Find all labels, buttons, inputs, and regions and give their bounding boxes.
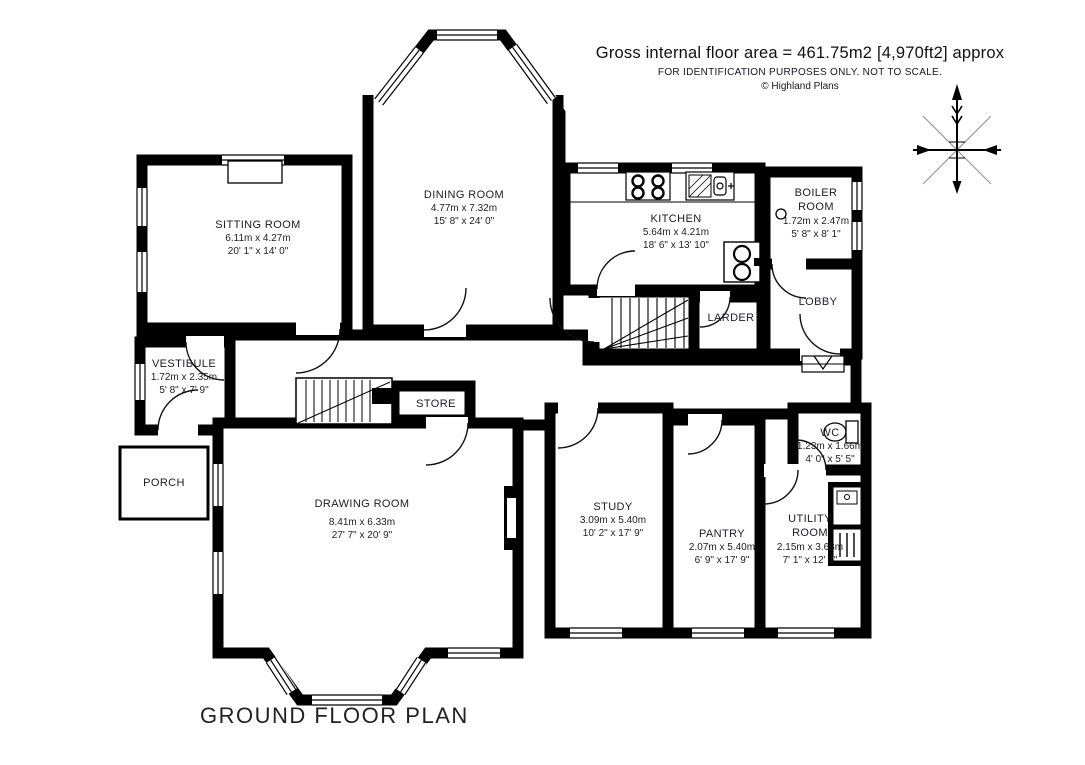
room-label-dining-room: DINING ROOM 4.77m x 7.32m 15' 8" x 24' 0…	[424, 188, 504, 228]
room-dims-metric: 8.41m x 6.33m	[315, 516, 410, 529]
room-label-store: STORE	[416, 397, 456, 411]
room-label-utility-room: UTILITY ROOM 2.15m x 3.68m 7' 1" x 12' 1…	[777, 512, 843, 567]
room-name: PANTRY	[689, 527, 755, 541]
room-name: SITTING ROOM	[215, 218, 300, 232]
room-name: STUDY	[580, 500, 646, 514]
floor-plan-page: Gross internal floor area = 461.75m2 [4,…	[0, 0, 1085, 765]
room-dims-imperial: 15' 8" x 24' 0"	[424, 215, 504, 228]
room-label-pantry: PANTRY 2.07m x 5.40m 6' 9" x 17' 9"	[689, 527, 755, 567]
room-dims-metric: 2.15m x 3.68m	[777, 541, 843, 554]
room-name: KITCHEN	[643, 212, 709, 226]
window-icon	[851, 222, 864, 250]
secondary-stairs-icon	[296, 378, 392, 424]
room-dims-metric: 1.72m x 2.35m	[151, 371, 217, 384]
window-icon	[212, 552, 225, 594]
room-dims-metric: 6.11m x 4.27m	[215, 232, 300, 245]
room-dims-metric: 5.64m x 4.21m	[643, 226, 709, 239]
window-icon	[692, 627, 744, 640]
window-icon	[448, 647, 500, 660]
room-dims-imperial: 7' 1" x 12' 1"	[777, 554, 843, 567]
room-name: DINING ROOM	[424, 188, 504, 202]
room-label-study: STUDY 3.09m x 5.40m 10' 2" x 17' 9"	[580, 500, 646, 540]
room-label-vestibule: VESTIBULE 1.72m x 2.35m 5' 8" x 7' 9"	[151, 357, 217, 397]
room-label-porch: PORCH	[143, 476, 185, 490]
copyright-text: © Highland Plans	[554, 81, 1046, 92]
room-name: UTILITY ROOM	[781, 512, 839, 541]
disclaimer-text: FOR IDENTIFICATION PURPOSES ONLY. NOT TO…	[554, 67, 1046, 78]
room-name: DRAWING ROOM	[315, 497, 410, 511]
room-dims-imperial: 10' 2" x 17' 9"	[580, 527, 646, 540]
header: Gross internal floor area = 461.75m2 [4,…	[554, 44, 1046, 92]
window-icon	[437, 29, 497, 42]
room-label-larder: LARDER	[707, 311, 754, 325]
window-icon	[778, 627, 834, 640]
room-dims-metric: 1.23m x 1.66m	[797, 440, 863, 453]
room-dims-imperial: 27' 7" x 20' 9"	[315, 529, 410, 542]
entrance-steps-icon	[802, 356, 844, 372]
fireplace-icon	[504, 486, 520, 550]
room-name: LOBBY	[799, 295, 838, 309]
room-label-wc: WC 1.23m x 1.66m 4' 0" x 5' 5"	[797, 426, 863, 466]
cooker-icon	[724, 242, 760, 282]
window-icon	[851, 182, 864, 210]
stairwell-walls	[594, 292, 694, 354]
compass-rose-icon	[913, 84, 1001, 194]
hob-icon	[626, 172, 670, 200]
gross-area-text: Gross internal floor area = 461.75m2 [4,…	[554, 44, 1046, 63]
room-dims-metric: 2.07m x 5.40m	[689, 541, 755, 554]
room-dims-imperial: 4' 0" x 5' 5"	[797, 453, 863, 466]
sink-icon	[686, 172, 734, 200]
room-name: PORCH	[143, 476, 185, 490]
window-icon	[136, 188, 149, 226]
room-label-kitchen: KITCHEN 5.64m x 4.21m 18' 6" x 13' 10"	[643, 212, 709, 252]
room-dims-metric: 1.72m x 2.47m	[783, 215, 849, 228]
room-label-drawing-room: DRAWING ROOM 8.41m x 6.33m 27' 7" x 20' …	[315, 497, 410, 542]
room-dims-imperial: 20' 1" x 14' 0"	[215, 245, 300, 258]
room-label-lobby: LOBBY	[799, 295, 838, 309]
room-dims-imperial: 5' 8" x 8' 1"	[783, 228, 849, 241]
window-icon	[136, 252, 149, 292]
room-name: BOILER ROOM	[787, 186, 845, 215]
walls	[140, 35, 866, 700]
room-dims-imperial: 6' 9" x 17' 9"	[689, 554, 755, 567]
window-icon	[570, 627, 622, 640]
room-name: STORE	[416, 397, 456, 411]
room-label-boiler-room: BOILER ROOM 1.72m x 2.47m 5' 8" x 8' 1"	[783, 186, 849, 241]
window-icon	[134, 364, 147, 400]
room-name: LARDER	[707, 311, 754, 325]
window-icon	[578, 162, 618, 175]
room-name: VESTIBULE	[151, 357, 217, 371]
room-dims-metric: 4.77m x 7.32m	[424, 202, 504, 215]
sitting-room-recess	[228, 161, 282, 183]
plan-title: GROUND FLOOR PLAN	[200, 703, 469, 729]
room-name: WC	[797, 426, 863, 440]
room-label-sitting-room: SITTING ROOM 6.11m x 4.27m 20' 1" x 14' …	[215, 218, 300, 258]
larder-walls	[694, 297, 762, 354]
room-dims-imperial: 18' 6" x 13' 10"	[643, 239, 709, 252]
room-dims-imperial: 5' 8" x 7' 9"	[151, 384, 217, 397]
window-icon	[212, 464, 225, 506]
room-dims-metric: 3.09m x 5.40m	[580, 514, 646, 527]
